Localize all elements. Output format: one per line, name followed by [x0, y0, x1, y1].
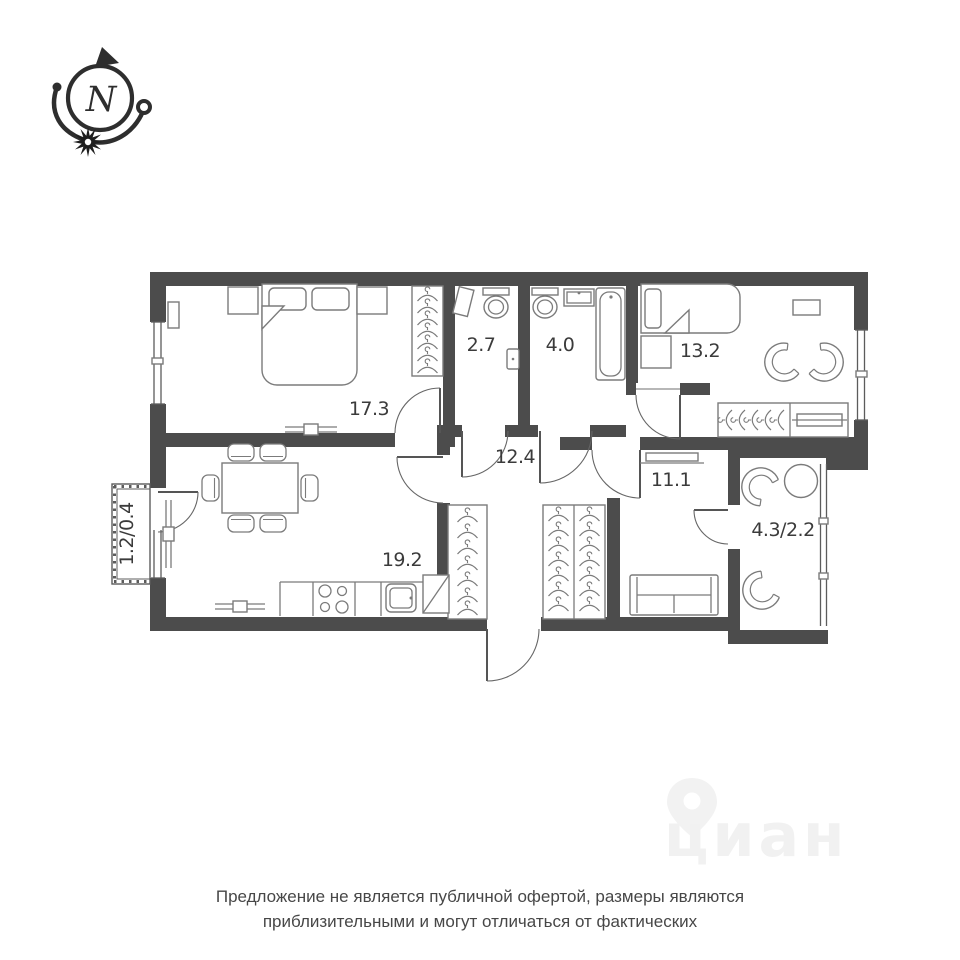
armchair-icon: [759, 341, 799, 387]
riser-panel-icon: [453, 287, 474, 317]
room-bedroom-second: 13.2: [641, 284, 849, 437]
wardrobe-icon: [412, 286, 443, 376]
single-bed-icon: [641, 284, 740, 333]
wall-box-icon: [507, 349, 519, 369]
room-label-balcony-right: 4.3/2.2: [751, 519, 814, 541]
sink-icon: [564, 289, 594, 306]
room-label-kitchen-living: 19.2: [382, 549, 422, 571]
nightstand-icon: [641, 336, 671, 368]
door-balcony-left-icon: [158, 492, 198, 532]
window-bedroom-main-icon: [151, 322, 165, 404]
shelf-icon: [640, 453, 704, 463]
window-bedroom-second-icon: [855, 330, 868, 420]
room-bedroom-main: 17.3: [168, 284, 443, 435]
watermark: циан: [664, 778, 848, 871]
room-label-bedroom-second: 13.2: [680, 340, 720, 362]
door-bedroom-second-icon: [636, 389, 680, 439]
room-label-11: 11.1: [651, 469, 691, 491]
chair-icon: [301, 475, 318, 501]
disclaimer: Предложение не является публичной оферто…: [0, 884, 960, 934]
stove-icon: [319, 585, 348, 613]
hall-closet-icon: [543, 505, 605, 619]
compass-dot-icon: [53, 83, 62, 92]
shelf-icon: [793, 300, 820, 315]
door-balcony-right-icon: [694, 510, 728, 544]
room-hallway: 12.4: [448, 446, 605, 619]
compass: N: [53, 47, 151, 157]
door-entrance-icon: [487, 629, 539, 681]
room-label-wc: 2.7: [467, 334, 496, 356]
room-balcony-left: 1.2/0.4: [112, 484, 150, 584]
armchair-icon: [734, 460, 780, 508]
closet-icon: [718, 403, 848, 437]
armchair-icon: [808, 341, 848, 387]
sofa-icon: [630, 575, 718, 615]
door-bedroom-main-icon: [395, 388, 440, 433]
dresser-icon: [792, 414, 847, 426]
compass-ring-end-icon: [138, 101, 150, 113]
chair-icon: [260, 444, 286, 461]
disclaimer-line-2: приблизительными и могут отличаться от ф…: [0, 909, 960, 934]
chair-icon: [260, 515, 286, 532]
room-wc: 2.7: [453, 287, 519, 369]
compass-needle-icon: [95, 47, 119, 67]
chair-icon: [228, 515, 254, 532]
room-label-hallway: 12.4: [495, 446, 536, 468]
kitchen-sink-icon: [386, 584, 416, 612]
nightstand-icon: [357, 287, 387, 314]
double-bed-icon: [262, 284, 357, 385]
radiator-icon: [215, 601, 265, 612]
toilet-icon: [532, 288, 558, 318]
room-balcony-right: 4.3/2.2: [734, 460, 817, 616]
dining-table-icon: [222, 463, 298, 513]
brand-text: циан: [664, 801, 848, 871]
room-kitchen-living: 19.2: [163, 444, 449, 616]
floor-plan: N: [0, 0, 960, 960]
room-bathroom: 4.0: [532, 288, 625, 380]
radiator-icon: [163, 500, 174, 568]
chair-icon: [228, 444, 254, 461]
room-label-bedroom-main: 17.3: [349, 398, 389, 420]
north-label: N: [85, 80, 118, 120]
nightstand-icon: [228, 287, 258, 314]
armchair-icon: [735, 569, 781, 617]
door-kitchen-living-icon: [397, 457, 443, 503]
round-table-icon: [785, 465, 818, 498]
disclaimer-line-1: Предложение не является публичной оферто…: [0, 884, 960, 909]
shelf-icon: [168, 302, 179, 328]
hall-closet-icon: [448, 505, 487, 619]
door-room-11-icon: [592, 450, 640, 498]
room-11: 11.1: [630, 453, 718, 615]
window-balcony-right-icon: [819, 464, 828, 626]
floorplan-page: N: [0, 0, 960, 960]
chair-icon: [202, 475, 219, 501]
duct-shaft-icon: [423, 575, 449, 613]
room-label-bathroom: 4.0: [546, 334, 575, 356]
room-label-balcony-left: 1.2/0.4: [116, 502, 138, 566]
bathtub-icon: [596, 288, 625, 380]
toilet-icon: [483, 288, 509, 318]
